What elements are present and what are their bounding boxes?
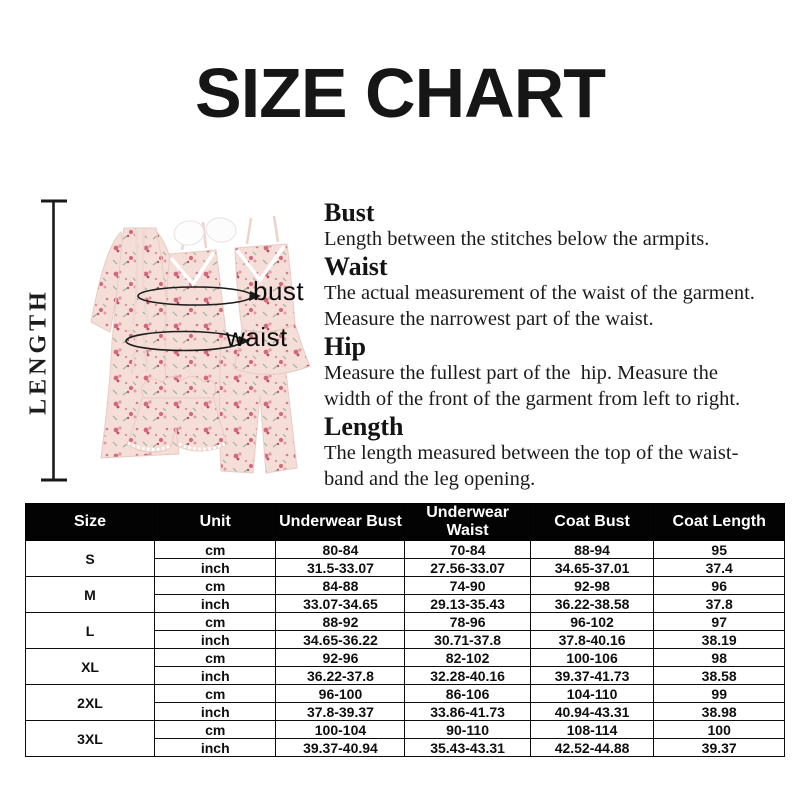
- definition-term: Waist: [324, 253, 792, 280]
- value-cell: 38.58: [654, 667, 785, 685]
- value-cell: 74-90: [405, 577, 530, 595]
- value-cell: 100-106: [530, 649, 654, 667]
- shorts-shape: [127, 376, 228, 452]
- definition-term: Bust: [324, 199, 792, 226]
- value-cell: 104-110: [530, 685, 654, 703]
- definition-text: Measure the fullest part of the hip. Mea…: [324, 360, 792, 387]
- definition-text: band and the leg opening.: [324, 466, 792, 493]
- value-cell: 36.22-38.58: [530, 595, 654, 613]
- page-title: SIZE CHART: [0, 58, 800, 128]
- value-cell: 96-100: [276, 685, 405, 703]
- value-cell: 29.13-35.43: [405, 595, 530, 613]
- size-cell: L: [26, 613, 155, 649]
- value-cell: 34.65-36.22: [276, 631, 405, 649]
- table-row: 3XL cm 100-104 90-110 108-114 100: [26, 721, 785, 739]
- value-cell: 88-94: [530, 541, 654, 559]
- value-cell: 38.98: [654, 703, 785, 721]
- value-cell: 37.8-40.16: [530, 631, 654, 649]
- unit-cell: cm: [155, 721, 276, 739]
- value-cell: 35.43-43.31: [405, 739, 530, 757]
- table-row: L cm 88-92 78-96 96-102 97: [26, 613, 785, 631]
- waist-label: waist: [226, 322, 288, 353]
- header-underwear-bust: Underwear Bust: [276, 504, 405, 541]
- size-table: Size Unit Underwear Bust Underwear Waist…: [25, 503, 785, 757]
- header-unit: Unit: [155, 504, 276, 541]
- value-cell: 36.22-37.8: [276, 667, 405, 685]
- definition-hip: Hip Measure the fullest part of the hip.…: [324, 333, 792, 413]
- unit-cell: inch: [155, 595, 276, 613]
- size-cell: M: [26, 577, 155, 613]
- table-row: XL cm 92-96 82-102 100-106 98: [26, 649, 785, 667]
- value-cell: 42.52-44.88: [530, 739, 654, 757]
- unit-cell: inch: [155, 559, 276, 577]
- definition-bust: Bust Length between the stitches below t…: [324, 199, 792, 253]
- value-cell: 39.37: [654, 739, 785, 757]
- value-cell: 78-96: [405, 613, 530, 631]
- header-coat-length: Coat Length: [654, 504, 785, 541]
- definition-text: The actual measurement of the waist of t…: [324, 280, 792, 307]
- value-cell: 100: [654, 721, 785, 739]
- definition-text: width of the front of the garment from l…: [324, 386, 792, 413]
- value-cell: 70-84: [405, 541, 530, 559]
- unit-cell: inch: [155, 667, 276, 685]
- unit-cell: inch: [155, 703, 276, 721]
- table-row: 2XL cm 96-100 86-106 104-110 99: [26, 685, 785, 703]
- value-cell: 38.19: [654, 631, 785, 649]
- value-cell: 108-114: [530, 721, 654, 739]
- unit-cell: cm: [155, 613, 276, 631]
- value-cell: 98: [654, 649, 785, 667]
- value-cell: 33.07-34.65: [276, 595, 405, 613]
- length-label: LENGTH: [26, 272, 53, 432]
- value-cell: 37.8: [654, 595, 785, 613]
- header-coat-bust: Coat Bust: [530, 504, 654, 541]
- value-cell: 88-92: [276, 613, 405, 631]
- value-cell: 40.94-43.31: [530, 703, 654, 721]
- value-cell: 39.37-40.94: [276, 739, 405, 757]
- unit-cell: inch: [155, 631, 276, 649]
- value-cell: 39.37-41.73: [530, 667, 654, 685]
- table-row: M cm 84-88 74-90 92-98 96: [26, 577, 785, 595]
- value-cell: 90-110: [405, 721, 530, 739]
- size-cell: 2XL: [26, 685, 155, 721]
- unit-cell: cm: [155, 577, 276, 595]
- value-cell: 86-106: [405, 685, 530, 703]
- value-cell: 33.86-41.73: [405, 703, 530, 721]
- value-cell: 96: [654, 577, 785, 595]
- unit-cell: cm: [155, 649, 276, 667]
- size-cell: 3XL: [26, 721, 155, 757]
- value-cell: 27.56-33.07: [405, 559, 530, 577]
- value-cell: 92-98: [530, 577, 654, 595]
- unit-cell: inch: [155, 739, 276, 757]
- definition-text: The length measured between the top of t…: [324, 440, 792, 467]
- value-cell: 100-104: [276, 721, 405, 739]
- value-cell: 97: [654, 613, 785, 631]
- definition-waist: Waist The actual measurement of the wais…: [324, 253, 792, 333]
- bust-label: bust: [253, 276, 304, 307]
- value-cell: 37.4: [654, 559, 785, 577]
- value-cell: 95: [654, 541, 785, 559]
- value-cell: 82-102: [405, 649, 530, 667]
- size-cell: S: [26, 541, 155, 577]
- value-cell: 84-88: [276, 577, 405, 595]
- definition-term: Length: [324, 413, 792, 440]
- value-cell: 92-96: [276, 649, 405, 667]
- size-cell: XL: [26, 649, 155, 685]
- measurement-diagram: LENGTH bust waist: [20, 190, 335, 492]
- unit-cell: cm: [155, 685, 276, 703]
- table-header-row: Size Unit Underwear Bust Underwear Waist…: [26, 504, 785, 541]
- definition-text: Measure the narrowest part of the waist.: [324, 306, 792, 333]
- value-cell: 37.8-39.37: [276, 703, 405, 721]
- value-cell: 80-84: [276, 541, 405, 559]
- definition-length: Length The length measured between the t…: [324, 413, 792, 493]
- value-cell: 96-102: [530, 613, 654, 631]
- value-cell: 34.65-37.01: [530, 559, 654, 577]
- value-cell: 30.71-37.8: [405, 631, 530, 649]
- unit-cell: cm: [155, 541, 276, 559]
- header-underwear-waist: Underwear Waist: [405, 504, 530, 541]
- value-cell: 31.5-33.07: [276, 559, 405, 577]
- value-cell: 99: [654, 685, 785, 703]
- header-size: Size: [26, 504, 155, 541]
- measurement-definitions: Bust Length between the stitches below t…: [324, 199, 792, 493]
- definition-text: Length between the stitches below the ar…: [324, 226, 792, 253]
- table-row: S cm 80-84 70-84 88-94 95: [26, 541, 785, 559]
- definition-term: Hip: [324, 333, 792, 360]
- value-cell: 32.28-40.16: [405, 667, 530, 685]
